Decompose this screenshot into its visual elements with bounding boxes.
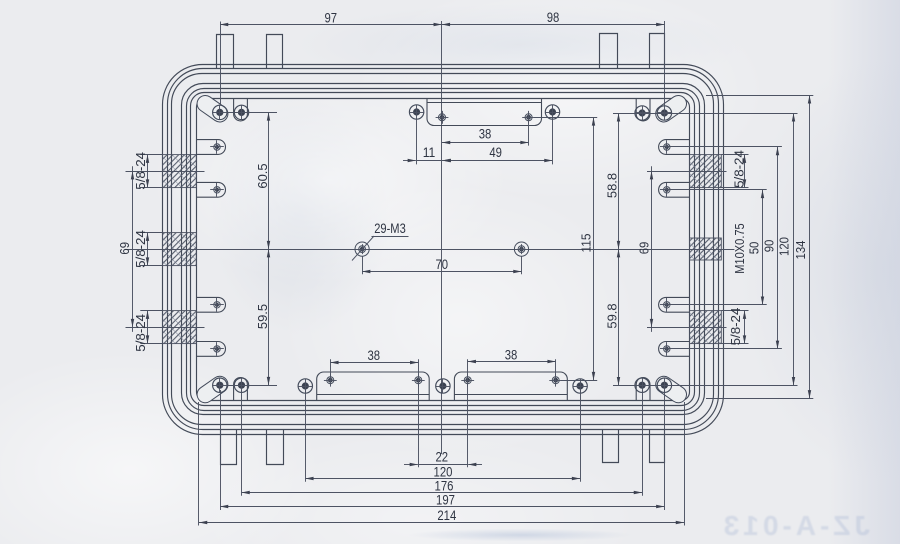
svg-text:120: 120 (777, 237, 792, 256)
svg-text:5/8-24: 5/8-24 (732, 150, 747, 188)
svg-text:11: 11 (423, 145, 436, 160)
svg-text:29-M3: 29-M3 (374, 221, 406, 236)
svg-text:90: 90 (762, 240, 777, 253)
svg-text:214: 214 (437, 508, 456, 523)
svg-text:60.5: 60.5 (255, 163, 270, 188)
svg-text:134: 134 (793, 241, 808, 260)
svg-text:5/8-24: 5/8-24 (133, 152, 148, 190)
svg-text:69: 69 (117, 242, 132, 255)
svg-text:50: 50 (746, 242, 761, 255)
svg-text:38: 38 (505, 347, 518, 362)
svg-text:38: 38 (368, 348, 381, 363)
svg-text:5/8-24: 5/8-24 (728, 308, 743, 346)
svg-text:22: 22 (436, 449, 449, 464)
svg-text:5/8-24: 5/8-24 (133, 230, 148, 268)
svg-text:5/8-24: 5/8-24 (133, 314, 148, 352)
svg-text:38: 38 (479, 127, 492, 142)
svg-text:97: 97 (325, 10, 338, 25)
svg-text:120: 120 (434, 464, 453, 479)
svg-text:59.5: 59.5 (255, 304, 270, 329)
svg-text:M10X0.75: M10X0.75 (733, 223, 747, 273)
svg-text:69: 69 (637, 242, 652, 255)
svg-text:176: 176 (435, 478, 454, 493)
svg-text:49: 49 (489, 145, 502, 160)
svg-text:59.8: 59.8 (604, 303, 619, 328)
svg-text:58.8: 58.8 (604, 173, 619, 198)
svg-text:197: 197 (436, 493, 455, 508)
svg-text:70: 70 (436, 257, 449, 272)
svg-text:115: 115 (578, 234, 593, 253)
svg-text:98: 98 (547, 10, 560, 25)
